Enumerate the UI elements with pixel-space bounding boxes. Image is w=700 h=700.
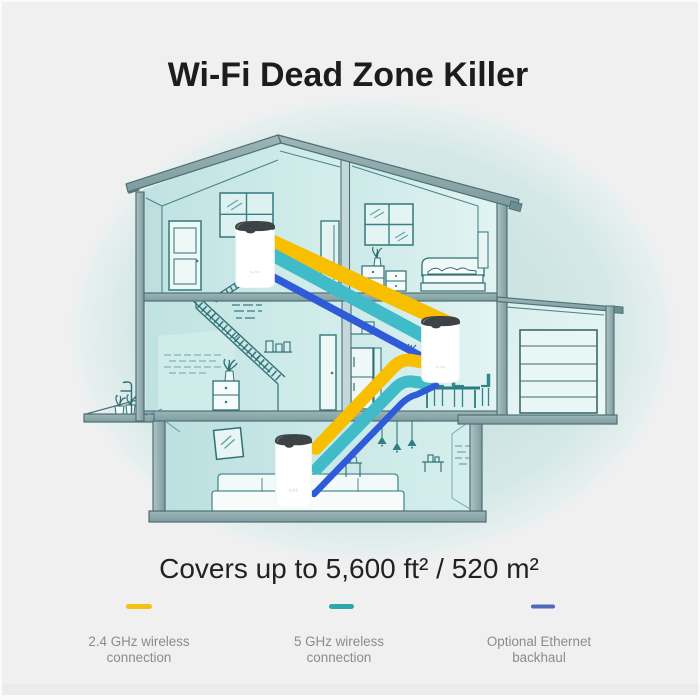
svg-text:connection: connection [307,650,372,665]
svg-text:connection: connection [107,650,172,665]
svg-text:Optional Ethernet: Optional Ethernet [487,634,591,649]
svg-text:2.4 GHz wireless: 2.4 GHz wireless [88,634,190,649]
svg-text:backhaul: backhaul [512,650,566,665]
svg-text:Covers up to 5,600 ft² / 520 m: Covers up to 5,600 ft² / 520 m² [159,553,539,584]
svg-text:5 GHz wireless: 5 GHz wireless [294,634,384,649]
svg-text:Wi-Fi Dead Zone Killer: Wi-Fi Dead Zone Killer [168,56,529,94]
